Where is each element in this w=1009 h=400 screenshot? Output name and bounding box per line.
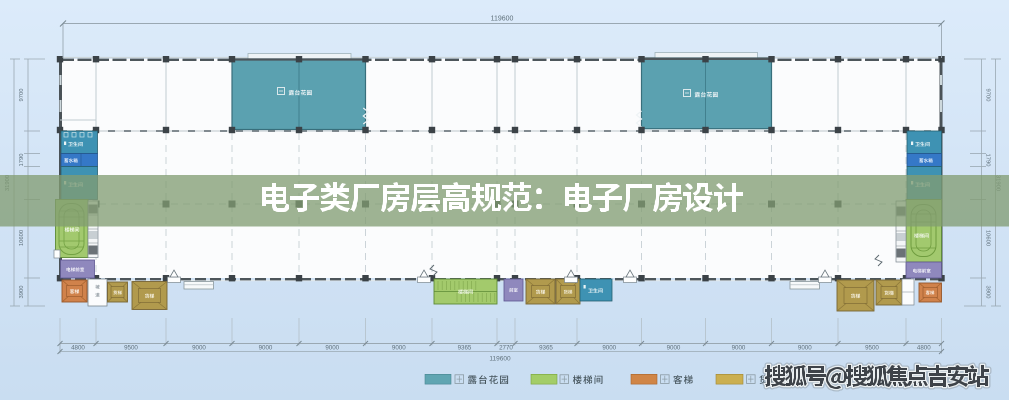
svg-text:9365: 9365	[539, 345, 553, 352]
svg-text:4800: 4800	[917, 345, 931, 352]
svg-text:9000: 9000	[667, 345, 681, 352]
svg-text:9500: 9500	[865, 345, 879, 352]
svg-text:9000: 9000	[798, 345, 812, 352]
svg-text:9000: 9000	[392, 345, 406, 352]
svg-text:9700: 9700	[19, 89, 25, 102]
svg-text:3900: 3900	[985, 286, 991, 299]
svg-text:119600: 119600	[491, 16, 514, 23]
svg-text:1790: 1790	[985, 154, 991, 167]
svg-text:9000: 9000	[325, 345, 339, 352]
svg-text:9000: 9000	[602, 345, 616, 352]
svg-text:2770: 2770	[499, 345, 513, 352]
svg-text:10600: 10600	[985, 230, 991, 246]
svg-text:3900: 3900	[19, 286, 25, 299]
svg-text:1790: 1790	[19, 154, 25, 167]
svg-text:4800: 4800	[71, 345, 85, 352]
svg-text:9000: 9000	[259, 345, 273, 352]
svg-text:10600: 10600	[19, 230, 25, 246]
svg-text:9000: 9000	[732, 345, 746, 352]
svg-text:9365: 9365	[458, 345, 472, 352]
svg-text:119600: 119600	[489, 356, 511, 363]
svg-text:9700: 9700	[985, 89, 991, 102]
svg-text:9500: 9500	[124, 345, 138, 352]
svg-text:9000: 9000	[192, 345, 206, 352]
